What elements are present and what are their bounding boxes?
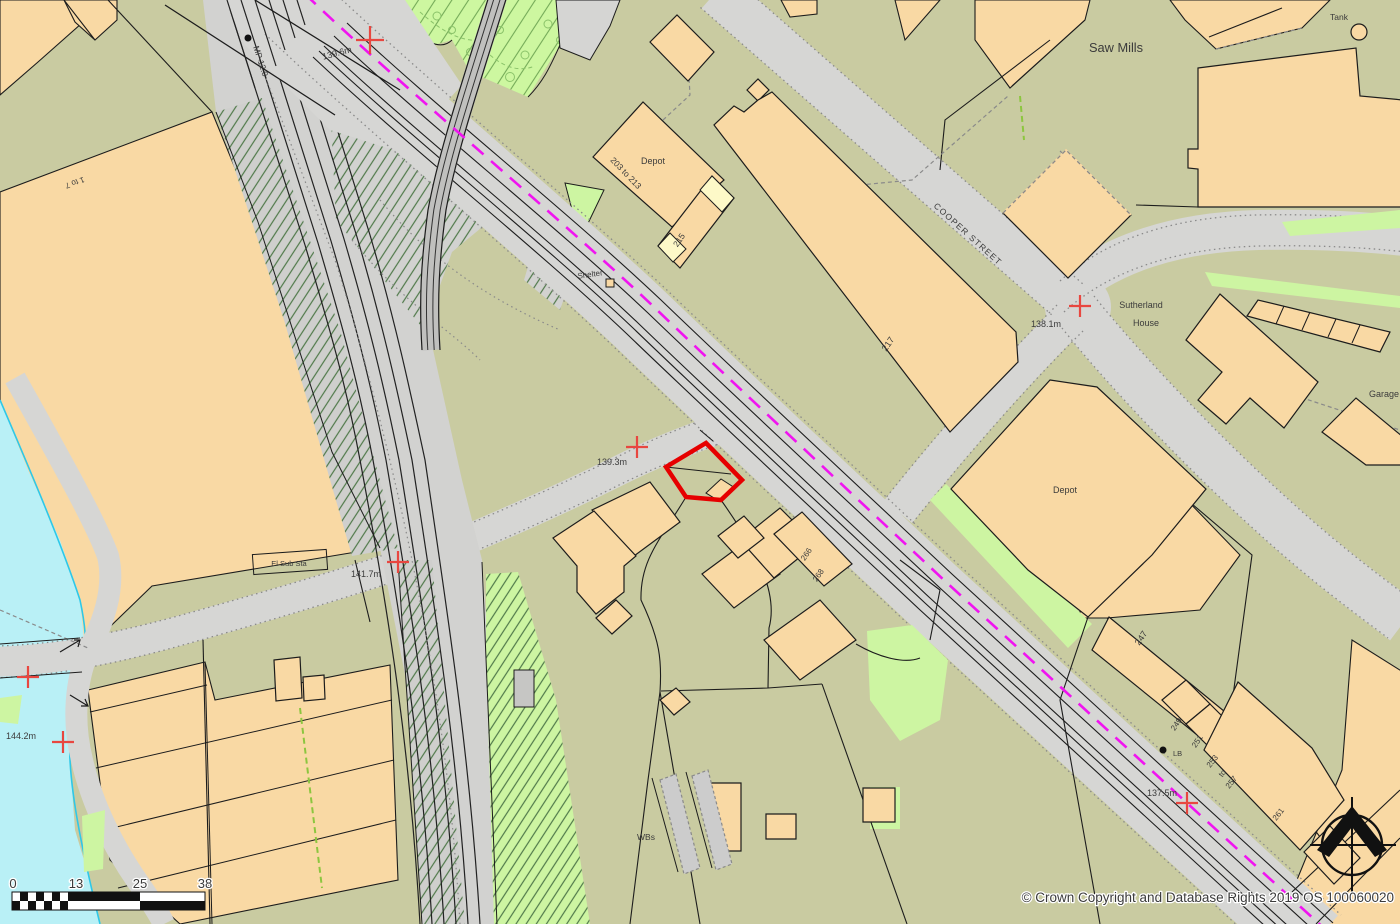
svg-text:141.7m: 141.7m [351, 569, 381, 579]
svg-text:Garage: Garage [1369, 389, 1399, 399]
svg-text:Tank: Tank [1330, 12, 1349, 22]
svg-text:LB: LB [1173, 749, 1182, 758]
svg-text:25: 25 [133, 876, 147, 891]
svg-text:138.1m: 138.1m [1031, 319, 1061, 329]
svg-text:House: House [1133, 318, 1159, 328]
svg-text:13: 13 [69, 876, 83, 891]
svg-text:144.2m: 144.2m [6, 731, 36, 741]
svg-text:38: 38 [198, 876, 212, 891]
svg-text:Depot: Depot [1053, 485, 1078, 495]
svg-text:El Sub Sta: El Sub Sta [271, 559, 307, 568]
svg-text:137.5m: 137.5m [1147, 788, 1177, 798]
svg-text:Saw Mills: Saw Mills [1089, 40, 1143, 55]
svg-text:Depot: Depot [641, 156, 666, 166]
svg-text:© Crown Copyright and Database: © Crown Copyright and Database Rights 20… [1022, 890, 1394, 905]
svg-text:Sutherland: Sutherland [1119, 300, 1163, 310]
svg-text:0: 0 [9, 876, 16, 891]
svg-text:139.3m: 139.3m [597, 457, 627, 467]
svg-text:WBs: WBs [637, 832, 655, 842]
